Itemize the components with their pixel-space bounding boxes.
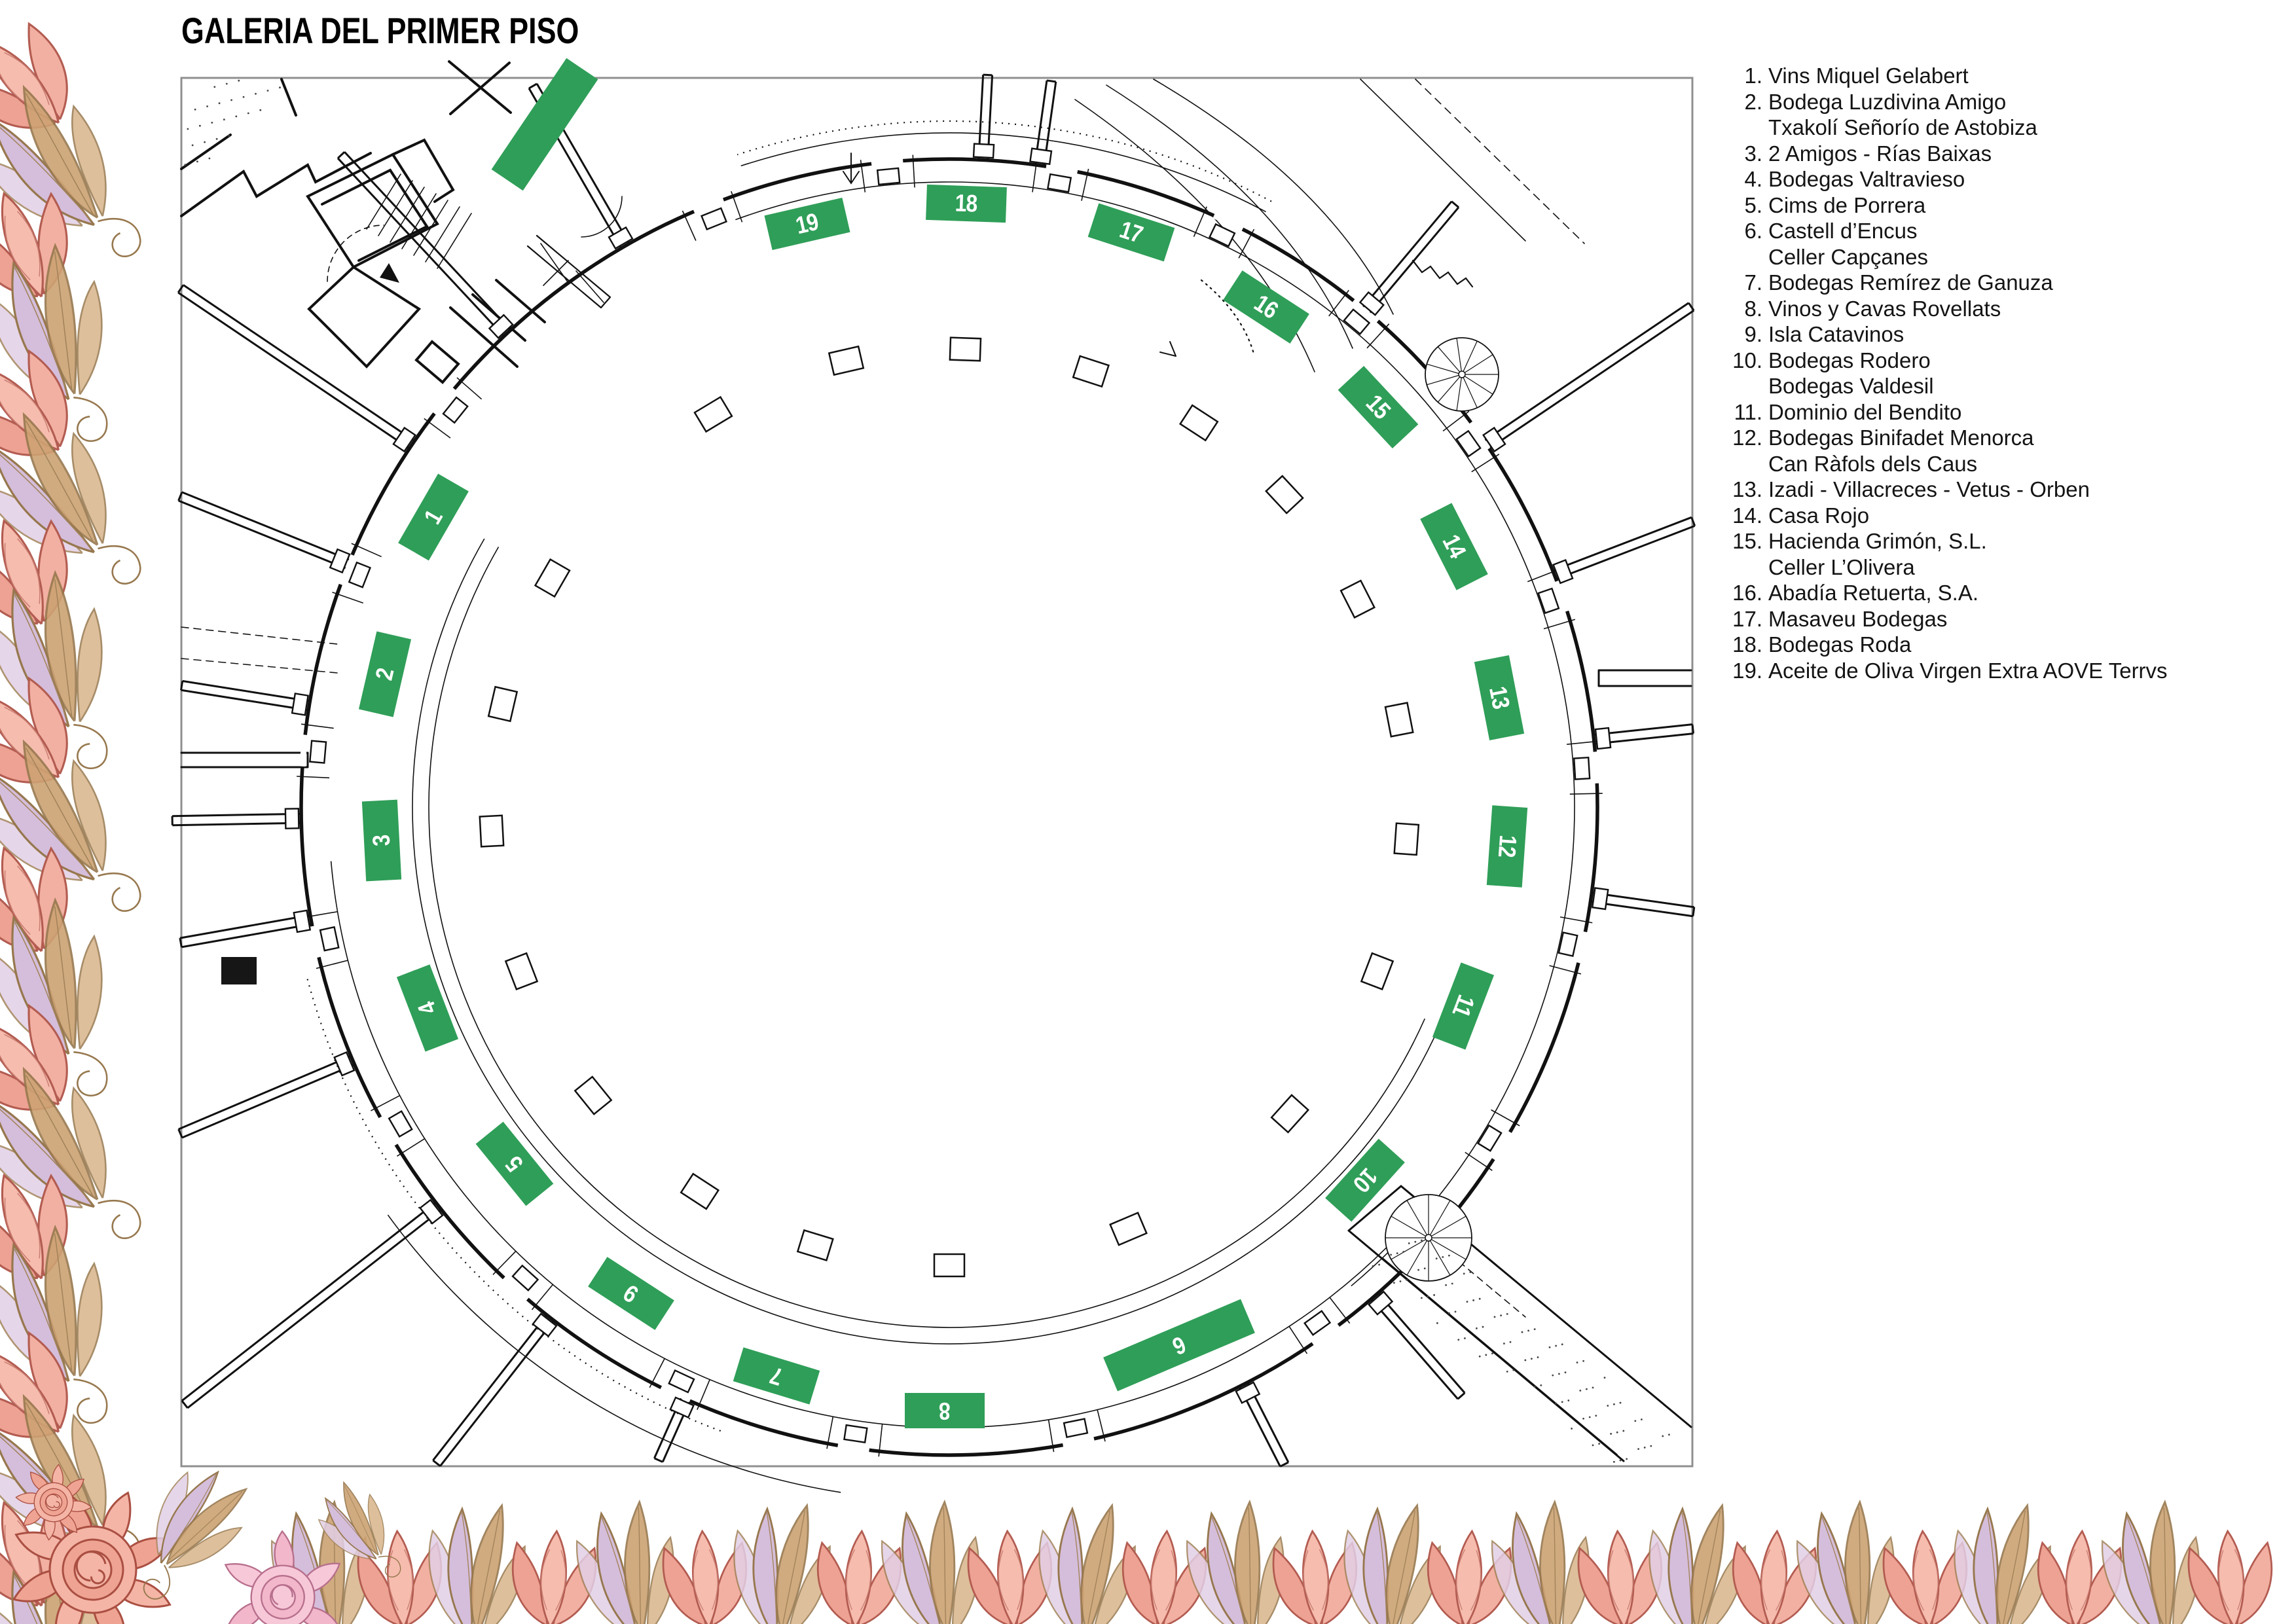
stand-marker-13: 13 — [1474, 655, 1524, 740]
stand-marker-unnumbered — [492, 58, 598, 190]
stand-marker-6: 6 — [1103, 1299, 1255, 1392]
stand-marker-15: 15 — [1338, 366, 1419, 448]
stand-marker-18: 18 — [926, 185, 1007, 223]
stand-markers-layer: 19181716151413121110687954321 — [0, 0, 2296, 1624]
stand-marker-12: 12 — [1487, 805, 1527, 887]
stand-marker-8: 8 — [905, 1393, 985, 1428]
stand-marker-17: 17 — [1088, 203, 1175, 261]
stand-marker-9: 9 — [588, 1257, 674, 1330]
page: { "title": "GALERIA DEL PRIMER PISO", "c… — [0, 0, 2296, 1624]
stand-marker-4: 4 — [397, 964, 458, 1051]
stand-marker-1: 1 — [398, 474, 469, 561]
stand-marker-7: 7 — [733, 1347, 820, 1404]
stand-marker-14: 14 — [1420, 503, 1488, 590]
stand-marker-10: 10 — [1325, 1139, 1405, 1222]
stand-marker-3: 3 — [362, 800, 401, 882]
stand-marker-16: 16 — [1223, 270, 1309, 344]
stand-marker-2: 2 — [359, 631, 411, 717]
stand-marker-11: 11 — [1432, 962, 1494, 1049]
stand-marker-19: 19 — [764, 198, 850, 250]
stand-marker-5: 5 — [476, 1122, 554, 1206]
